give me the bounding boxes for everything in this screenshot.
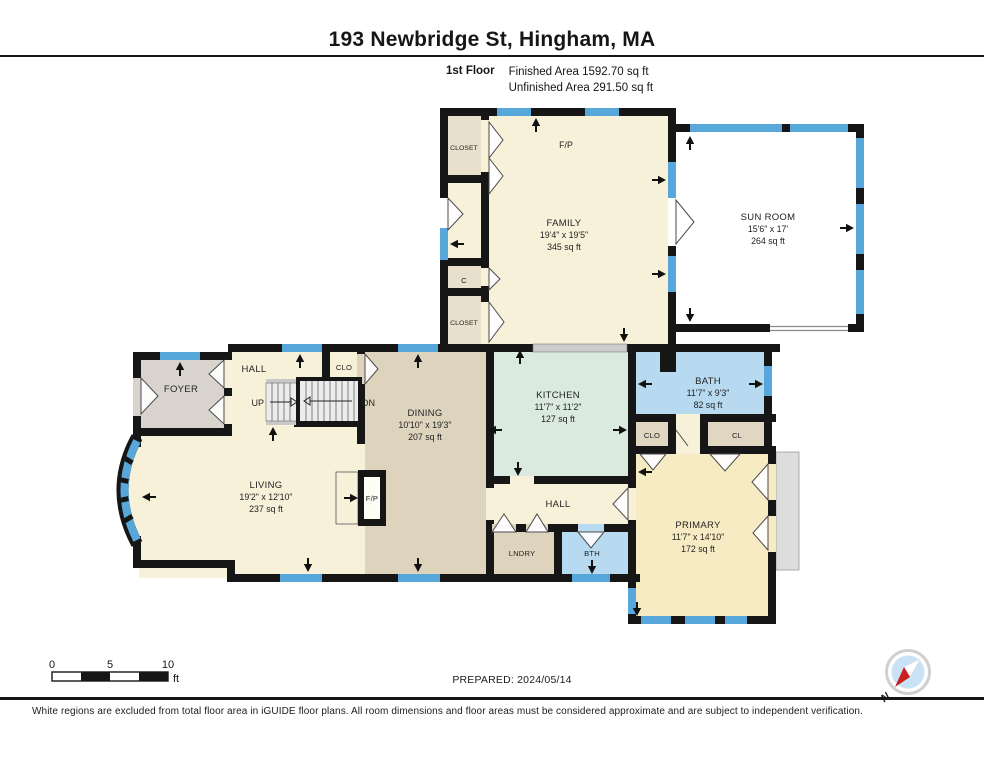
- window-segment: [572, 574, 610, 582]
- window-segment: [280, 574, 322, 582]
- hall-upper-label: HALL: [242, 364, 267, 375]
- bath-name: BATH: [695, 376, 721, 387]
- living-name: LIVING: [250, 480, 283, 491]
- clo-bath-label: CLO: [644, 431, 660, 440]
- disclaimer-text: White regions are excluded from total fl…: [32, 706, 863, 717]
- closet-c-label: C: [461, 276, 467, 285]
- window-segment: [398, 344, 438, 352]
- closet-bottom-label: CLOSET: [450, 320, 478, 327]
- window-segment: [856, 138, 864, 188]
- scale-bar: 0 5 10 ft: [49, 659, 179, 685]
- fireplace-living: [336, 470, 386, 526]
- laundry-label: LNDRY: [509, 549, 536, 558]
- hall-lower-label: HALL: [546, 499, 571, 510]
- stairs-down-label: DN: [362, 398, 375, 408]
- window-segment: [668, 162, 676, 198]
- family-dims: 19'4" x 19'5": [540, 230, 588, 240]
- exterior-landing: [776, 452, 799, 570]
- window-segment: [398, 574, 440, 582]
- scale-tick-0: 0: [49, 659, 55, 671]
- window-segment: [690, 124, 782, 132]
- living-dims: 19'2" x 12'10": [239, 492, 292, 502]
- closet-top-label: CLOSET: [450, 145, 478, 152]
- window-segment: [856, 270, 864, 314]
- primary-dims: 11'7" x 14'10": [672, 532, 725, 542]
- window-segment: [440, 228, 448, 260]
- bth-label: BTH: [584, 549, 600, 558]
- window-segment: [641, 616, 671, 624]
- prepared-date: PREPARED: 2024/05/14: [452, 674, 571, 686]
- kitchen-name: KITCHEN: [536, 390, 580, 401]
- floor-plan-page: 193 Newbridge St, Hingham, MA 1st Floor …: [0, 0, 984, 758]
- floor-plan-drawing: F/P CLOSET C CLOSET FAMILY 19'4" x 19'5"…: [0, 0, 984, 758]
- sunroom-area: 264 sq ft: [751, 236, 785, 246]
- living-area: 237 sq ft: [249, 504, 283, 514]
- fireplace-family-label: F/P: [559, 140, 573, 150]
- window-segment: [668, 256, 676, 292]
- window-segment: [160, 352, 200, 360]
- footer-divider: [0, 697, 984, 700]
- dining-dims: 10'10" x 19'3": [398, 420, 451, 430]
- family-area: 345 sq ft: [547, 242, 581, 252]
- foyer-label: FOYER: [164, 384, 198, 395]
- window-segment: [685, 616, 715, 624]
- window-segment: [585, 108, 619, 116]
- window-segment: [725, 616, 747, 624]
- stairs-up-label: UP: [251, 398, 264, 408]
- primary-area: 172 sq ft: [681, 544, 715, 554]
- dining-area: 207 sq ft: [408, 432, 442, 442]
- kitchen-dims: 11'7" x 11'2": [535, 402, 582, 412]
- cl-label: CL: [732, 431, 742, 440]
- window-segment: [282, 344, 322, 352]
- scale-unit: ft: [173, 673, 179, 685]
- window-segment: [856, 204, 864, 254]
- primary-name: PRIMARY: [675, 520, 721, 531]
- stairs: [266, 377, 362, 425]
- scale-tick-10: 10: [162, 659, 174, 671]
- pass-through-counter: [533, 344, 627, 352]
- scale-tick-5: 5: [107, 659, 113, 671]
- bath-dims: 11'7" x 9'3": [687, 388, 730, 398]
- window-segment: [764, 366, 772, 396]
- sunroom-name: SUN ROOM: [741, 212, 796, 223]
- sunroom-dims: 15'6" x 17': [748, 224, 789, 234]
- fireplace-living-label: F/P: [366, 494, 378, 503]
- window-segment: [497, 108, 531, 116]
- family-name: FAMILY: [547, 218, 582, 229]
- dining-name: DINING: [407, 408, 442, 419]
- dining-floor: [365, 348, 491, 576]
- kitchen-area: 127 sq ft: [541, 414, 575, 424]
- window-segment: [790, 124, 848, 132]
- bath-area: 82 sq ft: [694, 400, 723, 410]
- clo-hall-label: CLO: [336, 363, 352, 372]
